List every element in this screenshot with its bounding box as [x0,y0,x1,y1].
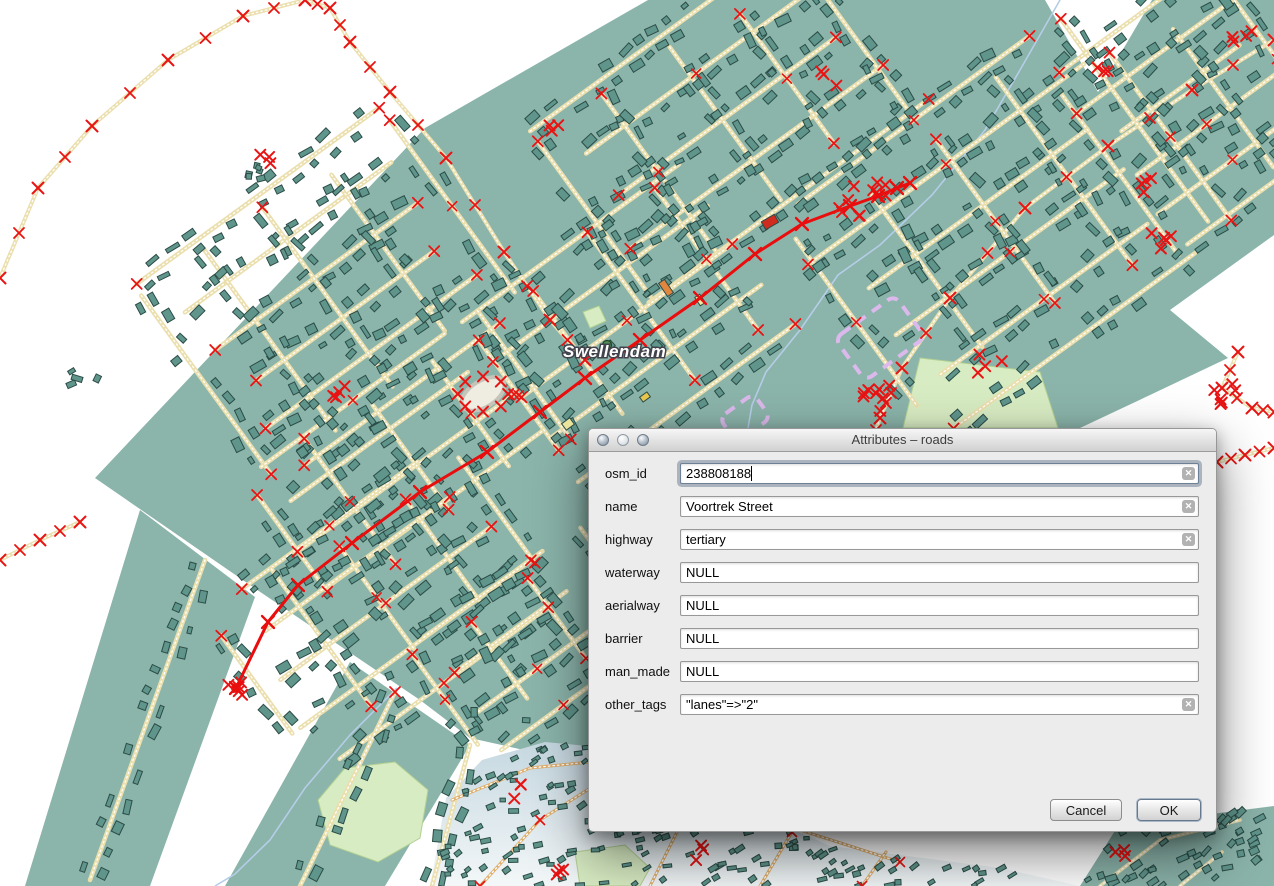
clear-field-icon[interactable]: ✕ [1182,500,1195,513]
field-row: osm_id ✕ [605,463,1199,484]
field-row: barrier [605,628,1199,649]
clear-field-icon[interactable]: ✕ [1182,533,1195,546]
field-input-highway[interactable] [680,529,1199,550]
clear-field-icon[interactable]: ✕ [1182,467,1195,480]
field-input-barrier[interactable] [680,628,1199,649]
field-label-waterway: waterway [605,565,680,580]
field-row: name ✕ [605,496,1199,517]
field-label-highway: highway [605,532,680,547]
labels-layer: Swellendam [563,341,666,362]
dialog-title: Attributes – roads [589,429,1216,451]
field-label-other_tags: other_tags [605,697,680,712]
field-label-name: name [605,499,680,514]
field-row: man_made [605,661,1199,682]
field-label-man_made: man_made [605,664,680,679]
place-label: Swellendam [563,342,666,361]
field-input-osm_id[interactable] [680,463,1199,484]
ok-button[interactable]: OK [1137,799,1201,821]
window-zoom-button[interactable] [637,434,649,446]
field-input-waterway[interactable] [680,562,1199,583]
dialog-fields: osm_id ✕ name ✕ highway ✕ waterway [605,463,1199,727]
window-controls [597,434,649,446]
window-minimize-button[interactable] [617,434,629,446]
field-row: waterway [605,562,1199,583]
cancel-button[interactable]: Cancel [1050,799,1122,821]
qgis-map-view: { "dialog": { "title": "Attributes – roa… [0,0,1274,886]
clear-field-icon[interactable]: ✕ [1182,698,1195,711]
field-row: highway ✕ [605,529,1199,550]
field-input-other_tags[interactable] [680,694,1199,715]
field-label-aerialway: aerialway [605,598,680,613]
field-input-name[interactable] [680,496,1199,517]
dialog-footer: Cancel OK [1050,799,1201,821]
field-row: aerialway [605,595,1199,616]
text-cursor [751,466,752,481]
field-label-barrier: barrier [605,631,680,646]
field-label-osm_id: osm_id [605,466,680,481]
field-input-man_made[interactable] [680,661,1199,682]
attributes-dialog: Attributes – roads osm_id ✕ name ✕ highw… [588,428,1217,832]
field-input-aerialway[interactable] [680,595,1199,616]
field-row: other_tags ✕ [605,694,1199,715]
dialog-titlebar[interactable]: Attributes – roads [589,429,1216,452]
window-close-button[interactable] [597,434,609,446]
